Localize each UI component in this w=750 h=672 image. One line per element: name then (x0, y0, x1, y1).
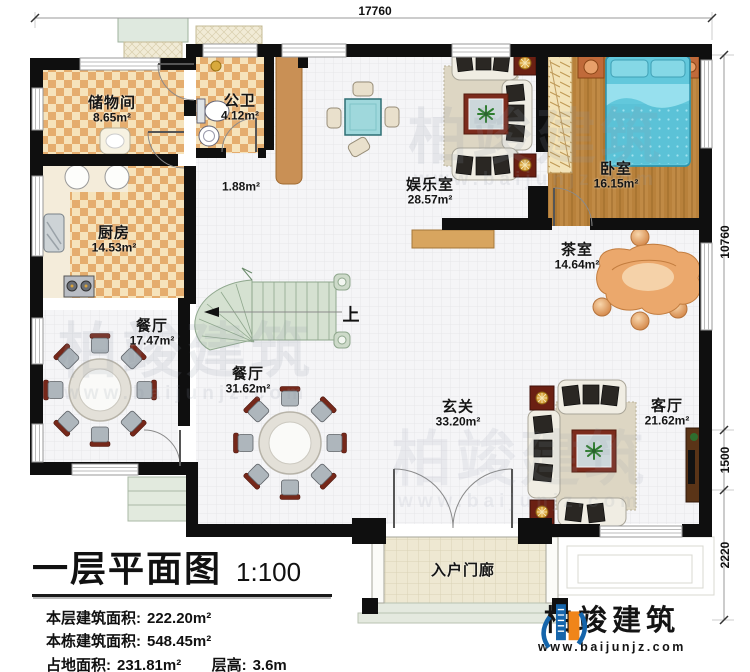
room-label-dining-open: 餐厅31.62m² (226, 366, 271, 395)
info-footprint-height: 占地面积:231.81m² 层高:3.6m (46, 654, 332, 672)
dim-right-1500: 1500 (718, 447, 732, 474)
dim-right-2220: 2220 (718, 542, 732, 569)
room-label-porch: 入户门廊 (431, 563, 495, 579)
dining-table-open (234, 387, 347, 500)
storage-appliance (100, 128, 130, 154)
room-label-storage: 储物间8.65m² (88, 95, 136, 124)
dim-right-10760: 10760 (718, 225, 732, 258)
room-label-dining-private: 餐厅17.47m² (130, 318, 175, 347)
stairs-up-label: 上 (343, 301, 360, 326)
brand-logo: 柏竣建筑 www.baijunjz.com (538, 597, 686, 654)
plan-scale: 1:100 (236, 557, 301, 588)
room-label-kitchen: 厨房14.53m² (92, 225, 137, 254)
brand-logo-icon (538, 597, 592, 651)
info-building-area: 本栋建筑面积:548.45m² (46, 630, 332, 653)
console-table (412, 230, 494, 248)
room-label-corridor: 1.88m² (222, 181, 260, 194)
floor-plan-page: 柏竣建筑 www.baijunjz.com 柏竣建筑 www.baijunjz.… (0, 0, 750, 672)
entertainment-sofa-group (444, 48, 536, 180)
room-label-tea-room: 茶室14.64m² (555, 242, 600, 271)
info-floor-area: 本层建筑面积:222.20m² (46, 607, 332, 630)
dim-top-17760: 17760 (358, 4, 391, 18)
room-label-bedroom: 卧室16.15m² (594, 161, 639, 190)
dining-table-private (44, 334, 157, 447)
room-label-entertainment: 娱乐室28.57m² (406, 177, 454, 206)
room-label-bath: 公卫4.12m² (221, 93, 259, 122)
title-block: 一层平面图 1:100 本层建筑面积:222.20m² 本栋建筑面积:548.4… (32, 540, 332, 672)
room-label-foyer: 玄关33.20m² (436, 399, 481, 428)
room-label-living: 客厅21.62m² (645, 398, 690, 427)
plan-title: 一层平面图 (32, 540, 222, 592)
